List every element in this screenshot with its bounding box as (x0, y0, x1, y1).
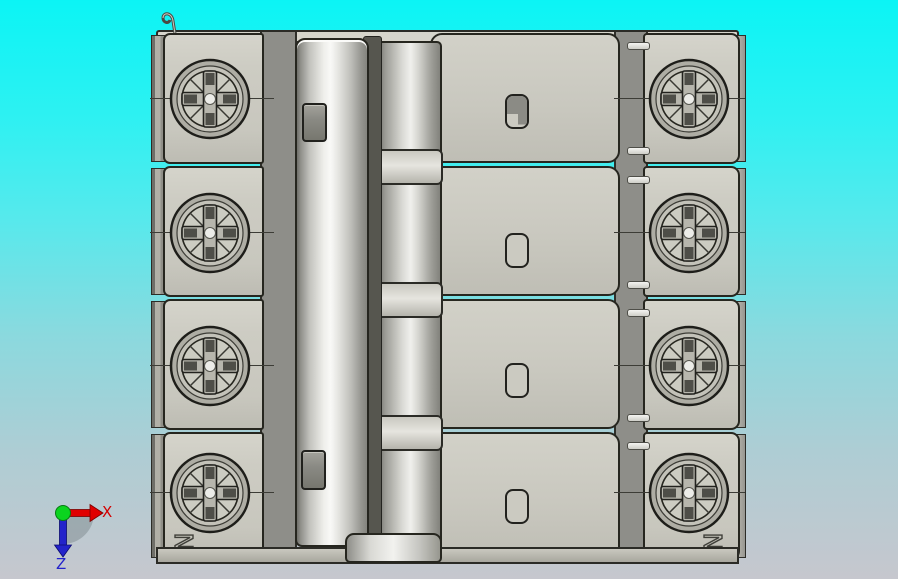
trip-indicator-flag (507, 96, 527, 127)
terminal-screw-icon (169, 58, 251, 140)
terminal-screw-icon (648, 452, 730, 534)
hinge-pin (627, 414, 650, 422)
terminal-screw-icon (648, 325, 730, 407)
hinge-pin (627, 309, 650, 317)
hinge-pin (627, 42, 650, 50)
breaker-pole-1 (150, 32, 745, 165)
terminal-screw-icon (648, 58, 730, 140)
hinge-pin (627, 147, 650, 155)
terminal-screw-icon (169, 452, 251, 534)
toggle-handle (377, 41, 442, 159)
breaker-pole-2 (150, 165, 745, 298)
terminal-screw-icon (169, 192, 251, 274)
hinge-pin (627, 442, 650, 450)
breaker-model: N N (150, 30, 745, 563)
tie-bar-foot (345, 533, 442, 563)
terminal-screw-icon (169, 325, 251, 407)
tie-bar-clip (302, 103, 327, 142)
trip-indicator-window (505, 363, 529, 398)
terminal-screw-icon (648, 192, 730, 274)
pole-front-panel (430, 166, 620, 296)
hinge-pin (627, 281, 650, 289)
x-axis-label: X (102, 503, 112, 521)
toggle-handle (377, 174, 442, 292)
trip-indicator-window (505, 489, 529, 524)
breaker-pole-3 (150, 298, 745, 431)
origin-point-icon (56, 506, 71, 521)
breaker-pole-4-neutral: N N (150, 431, 745, 561)
trip-indicator-window (505, 233, 529, 268)
hinge-pin (627, 176, 650, 184)
trip-indicator-window (505, 94, 529, 129)
breaker-bottom-face (156, 547, 739, 564)
axis-triad: X Z (40, 484, 128, 576)
housing-recess-left (260, 431, 297, 561)
tie-bar-clip (301, 450, 326, 490)
toggle-handle (377, 307, 442, 425)
cad-viewport[interactable]: N N (0, 0, 898, 579)
z-axis-label: Z (56, 555, 66, 573)
